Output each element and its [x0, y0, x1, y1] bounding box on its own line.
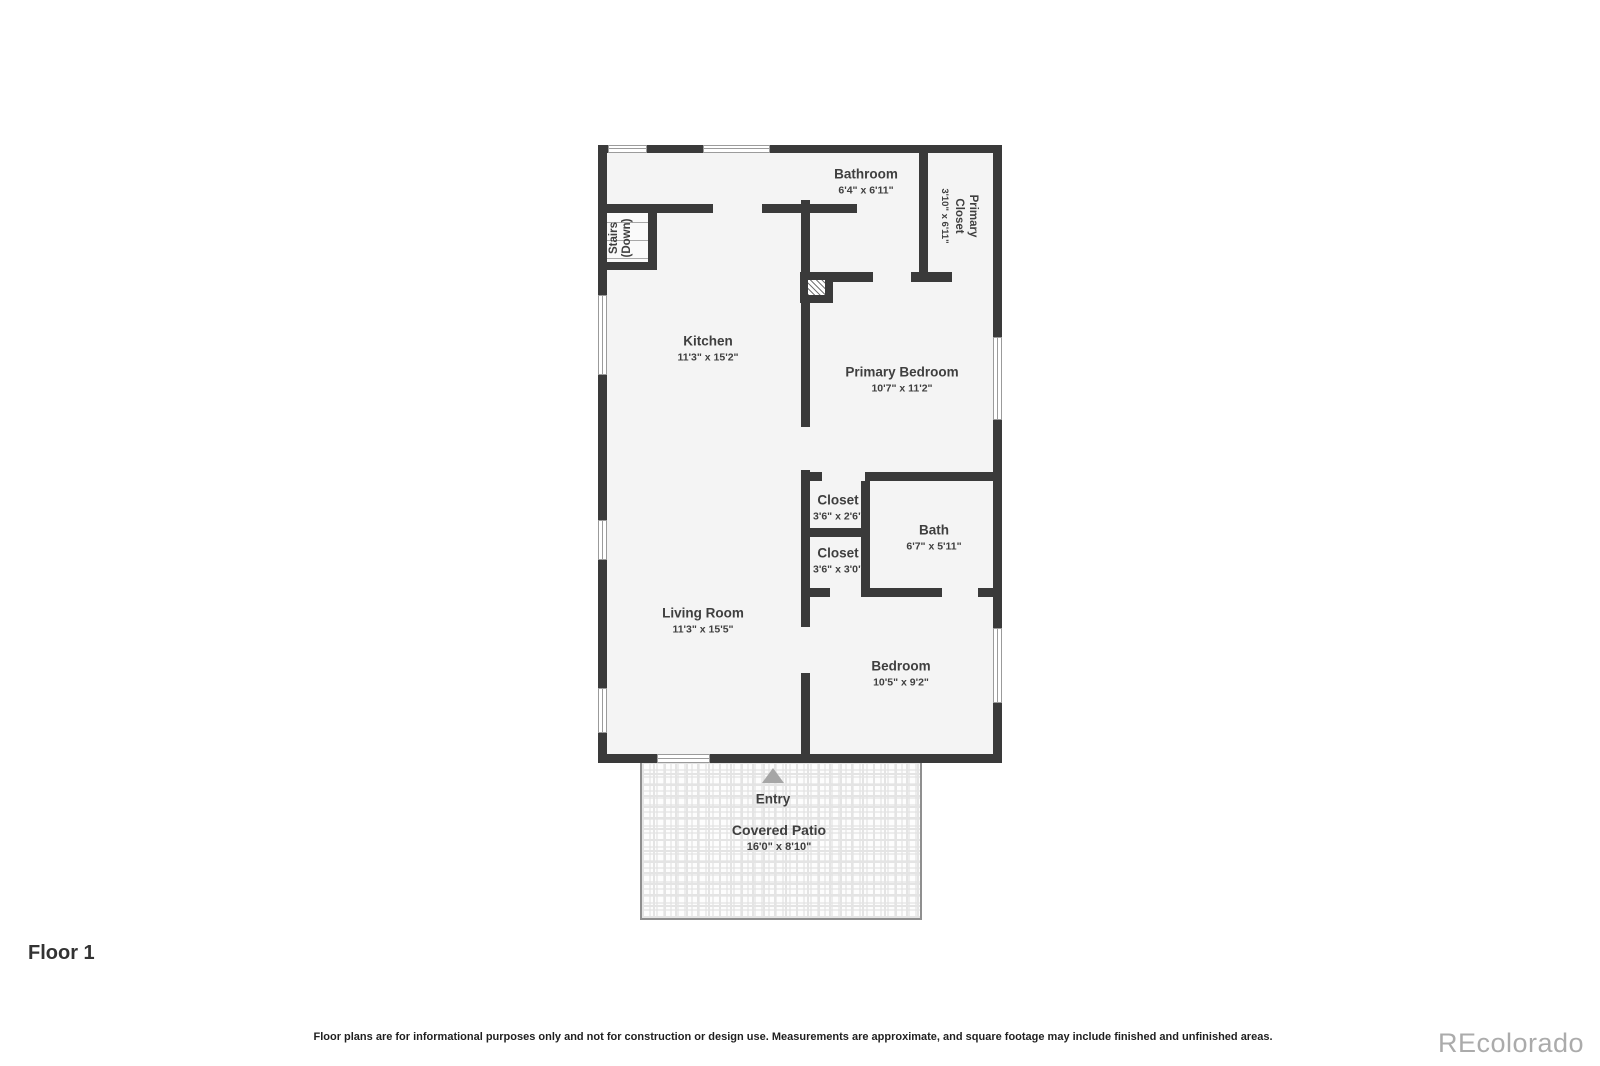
- room-dims: 11'3" x 15'2": [677, 351, 738, 364]
- room-label-primary-closet: Primary Closet 3'10" x 6'11": [939, 185, 979, 247]
- room-label-bathroom: Bathroom 6'4" x 6'11": [834, 167, 898, 198]
- room-dims: 3'6" x 3'0": [813, 563, 863, 576]
- room-name: Bathroom: [834, 167, 898, 184]
- room-name: Closet: [813, 493, 863, 510]
- wall: [598, 145, 607, 763]
- wall: [801, 673, 810, 754]
- disclaimer-text: Floor plans are for informational purpos…: [0, 1031, 1586, 1043]
- wall: [801, 588, 830, 597]
- window-marker: [993, 337, 1002, 420]
- room-label-bath: Bath 6'7" x 5'11": [906, 523, 961, 554]
- room-label-kitchen: Kitchen 11'3" x 15'2": [677, 334, 738, 365]
- room-dims: 3'10" x 6'11": [939, 185, 951, 247]
- entry-arrow-icon: [762, 768, 784, 783]
- wall: [598, 204, 713, 213]
- room-label-entry: Entry: [756, 792, 791, 809]
- room-label-closet-upper: Closet 3'6" x 2'6": [813, 493, 863, 524]
- window-marker: [598, 688, 607, 733]
- window-marker: [993, 628, 1002, 703]
- wall: [919, 153, 928, 282]
- room-name: Kitchen: [677, 334, 738, 351]
- wall: [801, 472, 822, 481]
- wall: [801, 200, 810, 427]
- chimney: [800, 272, 833, 303]
- room-dims: 10'7" x 11'2": [845, 382, 958, 395]
- room-label-living-room: Living Room 11'3" x 15'5": [662, 606, 744, 637]
- room-name: Bedroom: [871, 659, 930, 676]
- window-marker: [598, 295, 607, 375]
- room-name: Entry: [756, 792, 791, 809]
- window-marker: [657, 754, 710, 763]
- floor-title: Floor 1: [28, 942, 95, 965]
- wall: [801, 470, 810, 627]
- room-label-stairs: Stairs (Down): [608, 213, 634, 263]
- brand-watermark: REcolorado: [1438, 1028, 1584, 1059]
- wall: [911, 272, 952, 282]
- room-dims: 6'4" x 6'11": [834, 184, 898, 197]
- room-dims: 16'0" x 8'10": [732, 840, 826, 854]
- wall: [598, 262, 657, 270]
- room-dims: 10'5" x 9'2": [871, 676, 930, 689]
- floor-plan: Kitchen 11'3" x 15'2" Living Room 11'3" …: [0, 0, 1600, 1066]
- room-name: Covered Patio: [732, 822, 826, 840]
- window-marker: [598, 520, 607, 560]
- room-name: Bath: [906, 523, 961, 540]
- wall: [598, 145, 1002, 153]
- room-label-primary-bedroom: Primary Bedroom 10'7" x 11'2": [845, 365, 958, 396]
- wall: [978, 588, 1002, 597]
- room-label-covered-patio: Covered Patio 16'0" x 8'10": [732, 822, 826, 854]
- room-name: Stairs (Down): [608, 213, 634, 263]
- room-name: Living Room: [662, 606, 744, 623]
- room-dims: 3'6" x 2'6": [813, 510, 863, 523]
- room-name: Primary Closet: [952, 185, 980, 247]
- wall: [762, 204, 857, 213]
- room-label-bedroom: Bedroom 10'5" x 9'2": [871, 659, 930, 690]
- room-name: Closet: [813, 546, 863, 563]
- room-dims: 11'3" x 15'5": [662, 623, 744, 636]
- window-marker: [703, 145, 770, 153]
- wall: [861, 588, 942, 597]
- wall: [801, 528, 870, 537]
- room-label-closet-lower: Closet 3'6" x 3'0": [813, 546, 863, 577]
- wall: [865, 472, 1002, 481]
- chimney-hatch: [808, 280, 825, 295]
- room-name: Primary Bedroom: [845, 365, 958, 382]
- window-marker: [608, 145, 647, 153]
- floor-plan-page: Kitchen 11'3" x 15'2" Living Room 11'3" …: [0, 0, 1600, 1066]
- room-dims: 6'7" x 5'11": [906, 540, 961, 553]
